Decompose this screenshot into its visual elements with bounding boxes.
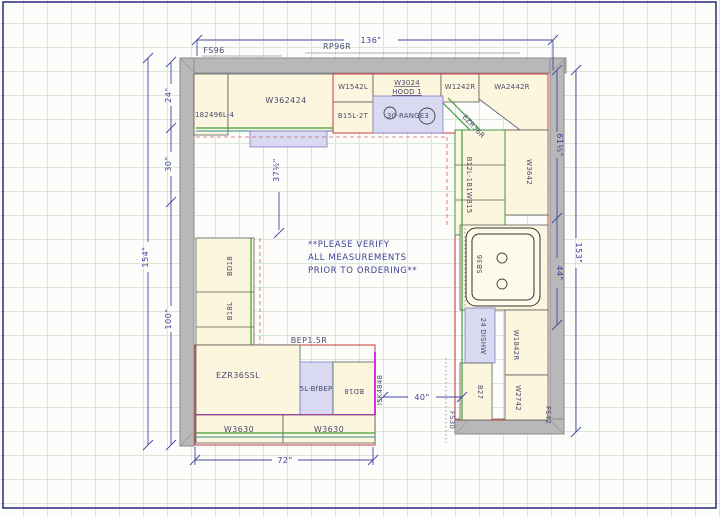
label-b27: B27 — [476, 385, 484, 399]
label-b18l: B18L — [226, 302, 234, 320]
label-dishwasher: 24 DISHW — [479, 318, 487, 355]
label-w362424: W362424 — [265, 96, 306, 105]
label-hood1: HOOD 1 — [392, 88, 422, 96]
floor-plan-drawing: 136" FS96 RP96R 154" 24" 30" 100" 37½" 6… — [0, 0, 720, 517]
cabinet-w2742[interactable] — [505, 375, 548, 420]
label-sb36: SB36 — [476, 254, 484, 273]
label-fs96: FS96 — [203, 46, 224, 55]
label-w3630-b: W3630 — [314, 425, 344, 434]
dim-top-136: 136" — [361, 36, 382, 45]
cabinet-ezr36ssl[interactable] — [196, 345, 300, 415]
label-bep15r: BEP1.5R — [291, 336, 327, 345]
label-w3024: W3024 — [394, 79, 420, 87]
cabinet-tall-fridge[interactable] — [194, 74, 228, 135]
label-isk4848: ISK4848 — [376, 375, 384, 405]
label-w3630-a: W3630 — [224, 425, 254, 434]
cabinet-b27[interactable] — [460, 363, 492, 420]
label-fs42: FS42 — [544, 406, 552, 424]
label-w1242r: W1242R — [445, 83, 476, 91]
label-w2742: W2742 — [514, 385, 522, 411]
label-wa2442r: WA2442R — [494, 83, 529, 91]
cabinet-w1842r[interactable] — [505, 310, 548, 375]
note-line2: ALL MEASUREMENTS — [308, 253, 407, 263]
wall-left[interactable] — [180, 58, 194, 446]
label-ezr36ssl: EZR36SSL — [216, 371, 260, 380]
note-line3: PRIOR TO ORDERING** — [308, 266, 417, 276]
dim-left-24: 24" — [164, 87, 173, 102]
floor-plan-canvas: 136" FS96 RP96R 154" 24" 30" 100" 37½" 6… — [0, 0, 720, 517]
dim-left-30: 30" — [164, 156, 173, 171]
dim-right-153: 153" — [574, 243, 583, 264]
label-fs30: FS30 — [448, 411, 456, 429]
label-bd18-island: BD18 — [344, 387, 364, 395]
label-b15l-2t: B15L-2T — [338, 112, 369, 120]
panel-under-w362424[interactable] — [250, 131, 327, 147]
label-w1542l: W1542L — [338, 83, 368, 91]
wall-top[interactable] — [180, 58, 566, 73]
dim-left-154: 154" — [141, 247, 150, 268]
dim-bottom-72: 72" — [277, 456, 292, 465]
cabinet-left-run[interactable] — [196, 238, 254, 345]
label-range: 30-RANGE3 — [387, 112, 429, 120]
label-bd18-left: BD18 — [226, 256, 234, 276]
label-w3642: W3642 — [525, 159, 533, 185]
dim-right-61half: 61½" — [555, 133, 564, 157]
label-b12l-group: B12L-1B1WB15 — [465, 157, 473, 214]
dim-right-44: 44" — [555, 265, 564, 280]
label-bfbep: 5L-BfBEP — [300, 385, 333, 393]
dim-aisle-40: 40" — [414, 393, 429, 402]
label-tall-fridge: 182496L-4 — [195, 111, 235, 119]
dim-left-100: 100" — [164, 309, 173, 330]
label-rp96r: RP96R — [323, 42, 351, 51]
label-w1842r: W1842R — [512, 330, 520, 361]
note-line1: **PLEASE VERIFY — [308, 240, 390, 250]
dim-37half: 37½" — [272, 158, 281, 182]
